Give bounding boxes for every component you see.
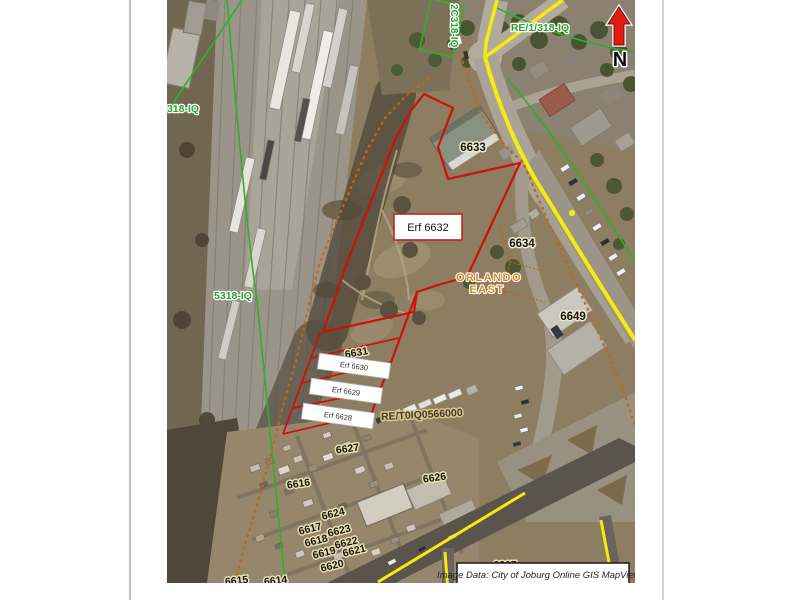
image-caption: Image Data: City of Joburg Online GIS Ma…: [437, 563, 635, 583]
parcel-label-6614: 6614: [263, 574, 288, 583]
caption-text: Image Data: City of Joburg Online GIS Ma…: [437, 570, 635, 581]
listing-photo-page: 318-IQ 5318-IQ RE/1/318-IQ 2C318-IQ 6633…: [0, 0, 800, 600]
callout-erf-6632: Erf 6632: [394, 214, 462, 240]
parcel-label-6634: 6634: [509, 238, 535, 250]
page-edge-line-left: [129, 0, 131, 600]
farm-label-2c318iq: 2C318-IQ: [448, 4, 459, 48]
page-edge-line-right: [662, 0, 664, 600]
area-label-orlando: ORLANDO: [456, 272, 522, 284]
north-label: N: [613, 49, 627, 71]
parcel-label-6615: 6615: [224, 574, 249, 583]
parcel-label-6633: 6633: [460, 142, 486, 154]
farm-label-5318iq: 5318-IQ: [214, 290, 252, 302]
farm-label-re1318iq: RE/1/318-IQ: [511, 22, 569, 34]
svg-text:Erf 6632: Erf 6632: [407, 222, 449, 234]
parcel-label-6649: 6649: [560, 311, 586, 323]
road-marker-dot: [569, 210, 575, 216]
gis-map: 318-IQ 5318-IQ RE/1/318-IQ 2C318-IQ 6633…: [167, 0, 635, 583]
satellite-map-svg: 318-IQ 5318-IQ RE/1/318-IQ 2C318-IQ 6633…: [167, 0, 635, 583]
area-label-east: EAST: [469, 284, 504, 296]
farm-label-318iq: 318-IQ: [167, 103, 199, 115]
